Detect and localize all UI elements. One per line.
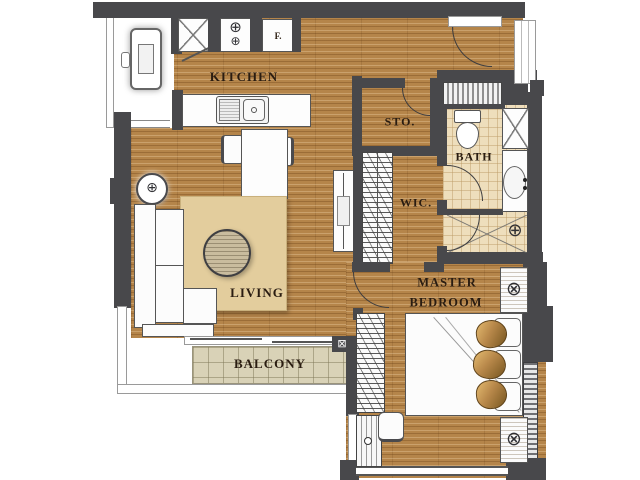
left-wall-pier: [110, 178, 131, 204]
balcony-railing-left: [117, 306, 127, 390]
side-table: ⊕: [136, 173, 168, 205]
shower-cabin: [502, 108, 529, 149]
bedroom-bottom-window: [356, 466, 508, 476]
sto-top-wall: [352, 78, 405, 88]
sofa-cushion: [155, 209, 184, 266]
left-exterior-wall: [114, 112, 131, 308]
wall-seg: [530, 80, 544, 96]
sink-drain: [251, 107, 257, 113]
corridor-threshold: [126, 120, 170, 128]
storage-label: STO.: [385, 115, 416, 130]
washer-handle: [121, 52, 130, 68]
table-lamp-icon: ⊕: [138, 181, 166, 195]
bedroom-top-wall: [352, 262, 390, 272]
fridge-label: F.: [275, 31, 282, 41]
sofa-cushion: [155, 265, 184, 323]
bath-label: BATH: [455, 150, 492, 165]
sliding-door-panel: [190, 338, 262, 340]
floor-plan: ⊕ ⊕ F. KITCHEN LIVING ⊕ BALCONY ⊠: [0, 0, 640, 480]
bath-left-wall: [437, 104, 447, 166]
sink-drainboard: [219, 99, 240, 121]
entry-threshold: [448, 16, 502, 27]
dresser-knob: [364, 437, 372, 445]
kitchen-label: KITCHEN: [210, 69, 278, 85]
bedroom-closet: [356, 313, 385, 413]
lamp-icon: ⊗: [501, 430, 527, 449]
vanity-sink: [503, 166, 526, 199]
desk-chair: [378, 412, 404, 442]
living-label: LIVING: [230, 285, 284, 301]
bath-right-wall: [527, 92, 542, 262]
corridor-left-window: [106, 16, 114, 128]
stove: ⊕ ⊕: [220, 18, 251, 52]
tv-unit: [337, 196, 350, 226]
wall-seg: [292, 16, 301, 52]
nightstand-north: ⊗: [500, 267, 528, 313]
balcony-railing-bottom: [117, 384, 357, 394]
balcony-label: BALCONY: [234, 356, 306, 372]
burner-icon: ⊕: [221, 20, 250, 35]
master-bedroom-label-line2: BEDROOM: [410, 296, 483, 311]
master-bedroom-label-line1: MASTER: [417, 276, 476, 291]
sofa-back: [134, 204, 156, 328]
lamp-icon: ⊗: [501, 280, 527, 299]
burner-icon: ⊕: [221, 35, 250, 47]
right-top-window: [514, 20, 536, 84]
wall-seg: [250, 16, 262, 52]
shower-head: ⊕: [504, 222, 526, 244]
faucet-dot: [523, 178, 527, 182]
bedroom-right-wall: [523, 306, 553, 362]
bedroom-top-wall: [424, 262, 444, 272]
pantry-shaft: [178, 18, 209, 52]
washing-machine-drum: [138, 44, 154, 74]
fridge: F.: [262, 19, 293, 52]
bath-closet-divider: [443, 104, 505, 109]
nightstand-south: ⊗: [500, 417, 528, 463]
wic-left-wall: [353, 150, 362, 264]
sto-left-wall: [352, 76, 362, 156]
hall-closet: [443, 82, 502, 105]
sofa-corner-seat: [183, 288, 217, 324]
wic-label: WIC.: [400, 196, 432, 211]
wic-wardrobe-divider: [377, 153, 378, 263]
coffee-table: [203, 229, 251, 277]
wall-seg: [208, 16, 220, 52]
faucet-dot: [523, 186, 527, 190]
shower-icon: ⊕: [504, 222, 526, 240]
dining-table: [241, 129, 288, 199]
